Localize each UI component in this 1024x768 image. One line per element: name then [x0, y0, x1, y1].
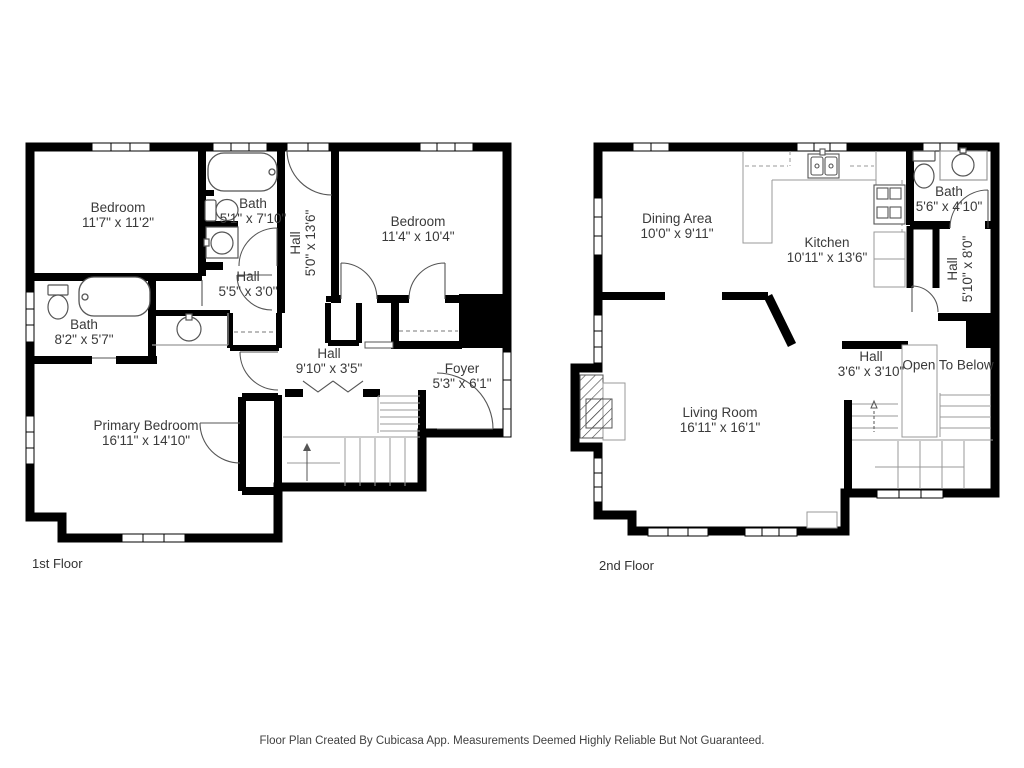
up-arrow [303, 443, 311, 451]
solid-wall-block [459, 294, 507, 348]
stoop [807, 512, 837, 528]
disclaimer-text: Floor Plan Created By Cubicasa App. Meas… [0, 735, 1024, 747]
vanity-sink [152, 313, 228, 345]
sink [204, 227, 238, 258]
closet-walls [910, 226, 936, 288]
room-label-hall: Hall5'10" x 8'0" [945, 236, 975, 303]
floor-caption-2nd: 2nd Floor [599, 558, 654, 573]
room-label-hall: Hall3'6" x 3'10" [838, 349, 905, 379]
cased-opening [365, 342, 393, 348]
staircase [283, 396, 420, 486]
solid-wall-block [966, 317, 995, 348]
room-label-hall: Hall5'5" x 3'0" [218, 269, 277, 299]
floor-caption-1st: 1st Floor [32, 556, 83, 571]
sink [940, 148, 987, 180]
toilet [48, 285, 68, 319]
room-label-open-to-below: Open To Below [902, 358, 993, 373]
room-label-kitchen: Kitchen10'11" x 13'6" [787, 235, 868, 265]
room-label-bath: Bath5'1" x 7'10" [220, 196, 287, 226]
room-label-living-room: Living Room16'11" x 16'1" [680, 405, 761, 435]
room-label-foyer: Foyer5'3" x 6'1" [432, 361, 491, 391]
room-label-bath: Bath8'2" x 5'7" [54, 317, 113, 347]
room-label-bath: Bath5'6" x 4'10" [916, 184, 983, 214]
closet-rod [234, 331, 458, 332]
floorplan-page: Bedroom11'7" x 11'2" Bath5'1" x 7'10" Ha… [0, 0, 1024, 768]
stove [874, 185, 905, 224]
room-label-hall: Hall9'10" x 3'5" [296, 346, 363, 376]
room-label-primary-bedroom: Primary Bedroom16'11" x 14'10" [93, 418, 198, 448]
toilet [913, 151, 935, 188]
room-label-dining-area: Dining Area10'0" x 9'11" [640, 211, 713, 241]
diagonal-wall [768, 296, 792, 345]
room-label-bedroom: Bedroom11'7" x 11'2" [82, 200, 154, 230]
opening-chevrons [303, 381, 363, 392]
room-label-bedroom: Bedroom11'4" x 10'4" [381, 214, 454, 244]
bathtub [208, 153, 277, 191]
room-label-hall: Hall5'0" x 13'6" [288, 210, 318, 277]
fireplace [580, 375, 625, 440]
refrigerator [874, 232, 905, 287]
bathtub [79, 277, 150, 316]
floorplan-drawing [0, 0, 1024, 768]
kitchen-sink [808, 149, 839, 178]
